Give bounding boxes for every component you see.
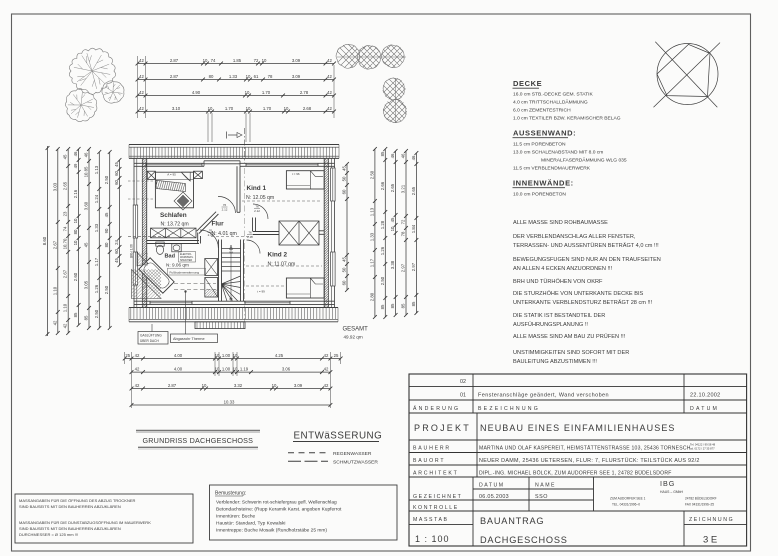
- svg-text:60: 60: [342, 280, 347, 285]
- svg-text:45: 45: [342, 166, 347, 171]
- svg-text:2.50: 2.50: [380, 276, 385, 285]
- svg-text:45: 45: [114, 258, 119, 263]
- svg-text:od. 0172 / 27 35 877: od. 0172 / 27 35 877: [690, 447, 715, 451]
- svg-text:DACHGESCHOSS: DACHGESCHOSS: [480, 535, 568, 545]
- svg-text:t = 99: t = 99: [257, 290, 265, 294]
- svg-text:76: 76: [223, 203, 227, 207]
- svg-text:85: 85: [411, 301, 416, 306]
- svg-text:DIPL.-ING. MICHAEL BÖLCK, ZUM: DIPL.-ING. MICHAEL BÖLCK, ZUM AUDORFER S…: [479, 469, 672, 476]
- svg-text:2.12: 2.12: [247, 235, 253, 239]
- svg-text:PROJEKT: PROJEKT: [414, 423, 471, 433]
- svg-text:3.32: 3.32: [234, 383, 243, 388]
- svg-text:1.00: 1.00: [222, 367, 231, 372]
- svg-text:10: 10: [284, 106, 289, 111]
- svg-text:DATUM: DATUM: [690, 406, 719, 412]
- svg-text:02: 02: [460, 379, 466, 385]
- svg-text:2.50: 2.50: [104, 285, 109, 294]
- svg-text:2.65: 2.65: [411, 186, 416, 195]
- svg-text:42: 42: [327, 58, 332, 63]
- svg-text:ARCHITEKT: ARCHITEKT: [413, 470, 459, 476]
- svg-text:2.78: 2.78: [300, 90, 309, 95]
- svg-text:85: 85: [84, 315, 89, 320]
- svg-text:N: 12.05 qm: N: 12.05 qm: [246, 195, 274, 201]
- svg-text:4.90: 4.90: [192, 90, 201, 95]
- svg-text:t = 96: t = 96: [292, 172, 300, 176]
- svg-text:AN ALLEN 4 ECKEN ANZUORDNEN !!: AN ALLEN 4 ECKEN ANZUORDNEN !!!: [513, 266, 613, 272]
- svg-text:45: 45: [63, 154, 68, 159]
- svg-text:4.0 cm TRITTSCHALLDÄMMUNG: 4.0 cm TRITTSCHALLDÄMMUNG: [513, 99, 588, 106]
- svg-text:INNENWÄNDE:: INNENWÄNDE:: [513, 179, 574, 188]
- svg-text:45: 45: [390, 217, 395, 222]
- svg-text:1 : 100: 1 : 100: [415, 534, 450, 544]
- svg-text:3.21: 3.21: [401, 184, 406, 193]
- svg-text:42: 42: [324, 353, 329, 358]
- svg-text:1.13: 1.13: [94, 165, 99, 174]
- svg-text:ZUM AUDORFER SEE 1: ZUM AUDORFER SEE 1: [610, 497, 646, 501]
- svg-text:Schlafen: Schlafen: [160, 212, 187, 219]
- svg-text:UNSTIMMIGKEITEN SIND SOFORT MI: UNSTIMMIGKEITEN SIND SOFORT MIT DER: [513, 350, 629, 356]
- svg-text:3.09: 3.09: [292, 74, 301, 79]
- svg-text:GASLÜFTUNG: GASLÜFTUNG: [140, 334, 162, 338]
- svg-text:1.33: 1.33: [94, 223, 99, 232]
- svg-text:6.0 cm ZEMENTESTRICH: 6.0 cm ZEMENTESTRICH: [513, 108, 571, 114]
- svg-text:2.50: 2.50: [104, 175, 109, 184]
- svg-text:10: 10: [208, 106, 213, 111]
- svg-text:46: 46: [390, 153, 395, 158]
- svg-text:42: 42: [327, 106, 332, 111]
- svg-text:10: 10: [245, 90, 250, 95]
- svg-text:10: 10: [246, 74, 251, 79]
- svg-text:2.87: 2.87: [170, 58, 179, 63]
- svg-text:TERRASSEN- UND AUSSENTÜREN BET: TERRASSEN- UND AUSSENTÜREN BETRÄGT 4,0 c…: [513, 242, 659, 249]
- svg-text:REGENWASSER: REGENWASSER: [333, 451, 372, 457]
- svg-text:Verblender: Schwerin rot-schie: Verblender: Schwerin rot-schiefergrau ge…: [216, 500, 337, 506]
- svg-text:2.87: 2.87: [170, 74, 179, 79]
- svg-text:60: 60: [342, 189, 347, 194]
- svg-text:49.92 qm: 49.92 qm: [344, 335, 363, 340]
- svg-text:10: 10: [390, 226, 395, 231]
- svg-text:Innentüren: Buche: Innentüren: Buche: [216, 514, 256, 520]
- svg-text:80: 80: [209, 74, 214, 79]
- svg-text:60: 60: [114, 180, 119, 185]
- svg-text:24: 24: [114, 240, 119, 245]
- svg-text:Tel. 04122 / 99 58 48: Tel. 04122 / 99 58 48: [690, 443, 716, 447]
- svg-text:2.16: 2.16: [73, 189, 78, 198]
- svg-text:1.70: 1.70: [262, 90, 271, 95]
- svg-text:42: 42: [135, 353, 140, 358]
- svg-text:MINERALFASERDÄMMUNG WLG 035: MINERALFASERDÄMMUNG WLG 035: [541, 157, 627, 164]
- svg-text:78: 78: [401, 231, 406, 236]
- svg-text:42: 42: [139, 58, 144, 63]
- svg-text:GESAMT: GESAMT: [343, 327, 369, 333]
- svg-text:ÜBER DACH: ÜBER DACH: [140, 339, 159, 343]
- svg-text:1.84: 1.84: [411, 224, 416, 233]
- svg-text:3.60: 3.60: [84, 201, 89, 210]
- svg-text:13.0 cm SCHALENABSTAND MIT 8.0: 13.0 cm SCHALENABSTAND MIT 8.0 cm: [513, 150, 603, 156]
- svg-text:01: 01: [460, 392, 466, 398]
- svg-text:80: 80: [104, 242, 109, 247]
- svg-text:BAULEITUNG ABZUSTIMMEN !!!: BAULEITUNG ABZUSTIMMEN !!!: [513, 359, 597, 365]
- svg-text:SSO: SSO: [535, 494, 548, 500]
- svg-text:11.5 cm PORENBETON: 11.5 cm PORENBETON: [513, 142, 566, 148]
- svg-text:85: 85: [73, 312, 78, 317]
- svg-text:BAUORT: BAUORT: [413, 458, 445, 464]
- svg-text:BRH UND TÜRHÖHEN VON OKRF: BRH UND TÜRHÖHEN VON OKRF: [513, 278, 603, 285]
- svg-text:ÄNDERUNG: ÄNDERUNG: [413, 405, 460, 412]
- svg-text:3.38: 3.38: [390, 260, 395, 269]
- svg-text:42: 42: [63, 323, 68, 328]
- svg-text:90: 90: [104, 228, 109, 233]
- svg-text:Flur: Flur: [212, 221, 225, 228]
- svg-text:SIND BAUSEITS MIT DEN BAUHERRE: SIND BAUSEITS MIT DEN BAUHERREN ABZUKLÄR…: [19, 526, 121, 531]
- svg-text:2.80: 2.80: [369, 292, 374, 301]
- svg-text:2.60: 2.60: [73, 272, 78, 281]
- svg-text:10: 10: [272, 383, 277, 388]
- svg-text:76: 76: [255, 205, 259, 209]
- svg-text:IBG: IBG: [660, 479, 675, 488]
- svg-text:2.97: 2.97: [411, 262, 416, 271]
- svg-text:24782 BÜDELSDORF: 24782 BÜDELSDORF: [685, 497, 717, 501]
- svg-text:1.00: 1.00: [222, 353, 231, 358]
- svg-text:10.0 cm PORENBETON: 10.0 cm PORENBETON: [513, 192, 566, 198]
- svg-text:85: 85: [380, 304, 385, 309]
- svg-text:3 E: 3 E: [703, 535, 717, 546]
- svg-text:3.09: 3.09: [294, 383, 303, 388]
- svg-text:DURCHMESSER = Ø 125 mm !!!: DURCHMESSER = Ø 125 mm !!!: [19, 532, 78, 537]
- svg-text:MASSTAB: MASSTAB: [413, 517, 449, 523]
- svg-text:Bemusterung:: Bemusterung:: [215, 491, 246, 497]
- svg-text:2.12: 2.12: [222, 208, 228, 212]
- svg-text:2.50: 2.50: [369, 170, 374, 179]
- svg-text:TEL. 04331/1996–0: TEL. 04331/1996–0: [612, 503, 640, 507]
- svg-text:42: 42: [139, 90, 144, 95]
- svg-text:45: 45: [342, 257, 347, 262]
- svg-text:N: 9.06 qm: N: 9.06 qm: [166, 263, 189, 268]
- svg-text:85: 85: [401, 303, 406, 308]
- svg-text:NEUER DAMM, 25436 UETERSEN, FL: NEUER DAMM, 25436 UETERSEN, FLUR: 7, FLU…: [479, 457, 700, 464]
- svg-text:85: 85: [390, 303, 395, 308]
- svg-text:1.85: 1.85: [233, 58, 242, 63]
- svg-text:46: 46: [84, 152, 89, 157]
- svg-text:DECKE: DECKE: [513, 79, 542, 88]
- svg-text:1.19: 1.19: [240, 367, 249, 372]
- svg-text:42: 42: [327, 74, 332, 79]
- svg-text:3.03: 3.03: [52, 182, 57, 191]
- svg-text:SCHMUTZWASSER: SCHMUTZWASSER: [333, 460, 378, 466]
- svg-text:1.33: 1.33: [369, 232, 374, 241]
- svg-text:25: 25: [125, 353, 130, 358]
- svg-text:AUSFÜHRUNGSPLANUNG !!: AUSFÜHRUNGSPLANUNG !!: [513, 321, 588, 328]
- svg-text:1.26: 1.26: [94, 284, 99, 293]
- svg-text:45: 45: [114, 162, 119, 167]
- svg-text:3.06: 3.06: [282, 367, 291, 372]
- svg-text:1.10: 1.10: [63, 303, 68, 312]
- svg-text:2.97: 2.97: [401, 263, 406, 272]
- svg-text:2.67: 2.67: [63, 269, 68, 278]
- svg-text:FAX 04331/1996–25: FAX 04331/1996–25: [685, 503, 714, 507]
- svg-text:61: 61: [254, 74, 259, 79]
- svg-text:11.5 cm VERBLENDMAUERWERK: 11.5 cm VERBLENDMAUERWERK: [513, 166, 591, 172]
- svg-text:ALLE MASSE SIND AM BAU ZU PRÜF: ALLE MASSE SIND AM BAU ZU PRÜFEN !!!: [513, 333, 626, 340]
- svg-text:A = 95: A = 95: [167, 173, 176, 177]
- svg-text:Betondachsteine: (Rupp Keramik: Betondachsteine: (Rupp Keramik Karst. an…: [216, 507, 342, 513]
- svg-text:10: 10: [73, 240, 78, 245]
- svg-text:4.00: 4.00: [174, 353, 183, 358]
- svg-text:2.50: 2.50: [94, 309, 99, 318]
- svg-text:50: 50: [342, 176, 347, 181]
- svg-text:2.66: 2.66: [380, 181, 385, 190]
- svg-text:42: 42: [324, 367, 329, 372]
- svg-text:1.26: 1.26: [380, 246, 385, 255]
- svg-text:Haustür: Standard, Typ Kowalsk: Haustür: Standard, Typ Kowalski: [216, 521, 286, 527]
- svg-text:1.17: 1.17: [94, 257, 99, 266]
- svg-text:DATUM: DATUM: [479, 482, 505, 488]
- svg-text:N: 13.72 qm: N: 13.72 qm: [161, 221, 189, 227]
- svg-text:MASSANGABEN FÜR DIE DUNSTABZUG: MASSANGABEN FÜR DIE DUNSTABZUGSÖFFNUNG I…: [19, 520, 151, 525]
- svg-text:3.10: 3.10: [172, 106, 181, 111]
- svg-text:74: 74: [63, 226, 68, 231]
- svg-text:22.10.2002: 22.10.2002: [690, 392, 721, 398]
- svg-text:60: 60: [114, 171, 119, 176]
- svg-text:DIE STURZHÖHE VON UNTERKANTE D: DIE STURZHÖHE VON UNTERKANTE DECKE BIS: [513, 290, 643, 297]
- svg-text:BEZEICHNUNG: BEZEICHNUNG: [478, 406, 540, 412]
- svg-text:NAME: NAME: [535, 482, 556, 488]
- svg-text:Auf: Auf: [229, 251, 233, 255]
- svg-text:42: 42: [327, 90, 332, 95]
- svg-text:1.13: 1.13: [369, 207, 374, 216]
- svg-text:2.65: 2.65: [63, 181, 68, 190]
- svg-text:10,70: 10,70: [63, 238, 68, 249]
- svg-text:72: 72: [254, 58, 259, 63]
- svg-text:NEUBAU EINES EINFAMILIENHAUSES: NEUBAU EINES EINFAMILIENHAUSES: [480, 423, 676, 433]
- svg-text:SIND BAUSEITS MIT DEN BAUHERRE: SIND BAUSEITS MIT DEN BAUHERREN ABZUKLÄR…: [19, 504, 121, 509]
- svg-text:42: 42: [324, 383, 329, 388]
- svg-text:DER VERBLENDANSCHLAG ALLER FEN: DER VERBLENDANSCHLAG ALLER FENSTER,: [513, 234, 636, 240]
- svg-text:42: 42: [52, 320, 57, 325]
- svg-text:ZEICHNUNG: ZEICHNUNG: [689, 517, 734, 523]
- svg-text:Kind 1: Kind 1: [247, 185, 267, 192]
- svg-text:10: 10: [262, 58, 267, 63]
- svg-text:BAUANTRAG: BAUANTRAG: [480, 516, 544, 526]
- svg-text:DIE STATIK IST BESTANDTEIL DER: DIE STATIK IST BESTANDTEIL DER: [513, 313, 605, 319]
- svg-text:74: 74: [211, 58, 216, 63]
- svg-text:10: 10: [202, 383, 207, 388]
- svg-text:BEWEGUNGSFUGEN SIND NUR AN DEN: BEWEGUNGSFUGEN SIND NUR AN DEN TRAUFSEIT…: [513, 257, 661, 263]
- svg-text:2.68: 2.68: [303, 106, 312, 111]
- svg-text:42: 42: [135, 383, 140, 388]
- svg-text:1.24: 1.24: [94, 194, 99, 203]
- svg-text:1.17: 1.17: [369, 258, 374, 267]
- svg-text:MASSANGABEN FÜR DIE ÖFFNUNG DE: MASSANGABEN FÜR DIE ÖFFNUNG DES ABZUG TR…: [19, 498, 135, 503]
- svg-text:46: 46: [401, 153, 406, 158]
- svg-text:HAUS – GMbH: HAUS – GMbH: [660, 490, 684, 494]
- svg-text:1.0 cm TEXTILER BZW. KERAMISCH: 1.0 cm TEXTILER BZW. KERAMISCHER BELAG: [513, 116, 621, 122]
- svg-text:23: 23: [63, 211, 68, 216]
- svg-text:2.65: 2.65: [390, 183, 395, 192]
- svg-text:60: 60: [114, 249, 119, 254]
- svg-text:1.33: 1.33: [229, 74, 238, 79]
- svg-text:42: 42: [135, 367, 140, 372]
- svg-text:8.60: 8.60: [42, 236, 47, 245]
- svg-text:SPEICHER: SPEICHER: [180, 259, 192, 262]
- svg-text:Abgasrohr Therme: Abgasrohr Therme: [173, 337, 205, 341]
- svg-text:72: 72: [401, 219, 406, 224]
- svg-text:46: 46: [73, 151, 78, 156]
- svg-text:MARTINA UND OLAF KASPEREIT, HE: MARTINA UND OLAF KASPEREIT, HEIMSTÄTTENS…: [479, 444, 691, 451]
- svg-text:KONTROLLE: KONTROLLE: [413, 505, 459, 511]
- svg-text:3.05: 3.05: [84, 280, 89, 289]
- svg-text:1.70: 1.70: [225, 106, 234, 111]
- svg-text:AUSSENWAND:: AUSSENWAND:: [513, 129, 576, 138]
- svg-text:N: 11.07 qm: N: 11.07 qm: [268, 261, 296, 267]
- svg-text:ALLE MASSE SIND ROHBAUMASSE: ALLE MASSE SIND ROHBAUMASSE: [513, 220, 608, 226]
- svg-text:2.67: 2.67: [52, 240, 57, 249]
- svg-text:10.33: 10.33: [224, 399, 235, 404]
- svg-text:2.87: 2.87: [168, 383, 177, 388]
- svg-text:10: 10: [203, 58, 208, 63]
- svg-text:46: 46: [411, 155, 416, 160]
- svg-text:80: 80: [73, 229, 78, 234]
- svg-text:3.09: 3.09: [292, 58, 301, 63]
- svg-text:50: 50: [342, 267, 347, 272]
- svg-text:06.05.2003: 06.05.2003: [479, 494, 509, 500]
- svg-text:45: 45: [104, 212, 109, 217]
- svg-text:45: 45: [84, 242, 89, 247]
- svg-text:Fußbodenerwärmung: Fußbodenerwärmung: [170, 270, 200, 274]
- svg-text:Kind 2: Kind 2: [268, 251, 288, 258]
- svg-text:16.0 cm STB.-DECKE GEM. STATIK: 16.0 cm STB.-DECKE GEM. STATIK: [513, 92, 593, 98]
- svg-text:4.25: 4.25: [275, 353, 284, 358]
- svg-text:Bad: Bad: [165, 254, 176, 260]
- svg-text:49: 49: [73, 163, 78, 168]
- svg-text:1.70: 1.70: [263, 106, 272, 111]
- svg-text:ENTWäSSERUNG: ENTWäSSERUNG: [294, 431, 383, 442]
- svg-text:10: 10: [73, 218, 78, 223]
- svg-text:Innentreppe: Buche Mosaik (Run: Innentreppe: Buche Mosaik (Rundholzstäbe…: [216, 528, 327, 534]
- svg-text:76: 76: [248, 231, 252, 235]
- svg-text:BAUHERR: BAUHERR: [413, 445, 451, 451]
- svg-text:GRUNDRISS DACHGESCHOSS: GRUNDRISS DACHGESCHOSS: [143, 436, 254, 445]
- svg-text:1.10: 1.10: [52, 286, 57, 295]
- svg-text:N: 4.01 qm: N: 4.01 qm: [212, 231, 237, 237]
- svg-text:UNTERKANTE VERBLENDSTURZ BETRÄ: UNTERKANTE VERBLENDSTURZ BETRÄGT 28 cm !…: [513, 299, 653, 306]
- svg-text:78: 78: [268, 74, 273, 79]
- svg-text:BRH 1.06: BRH 1.06: [130, 244, 134, 258]
- svg-text:85: 85: [380, 151, 385, 156]
- svg-text:10: 10: [246, 106, 251, 111]
- svg-text:42: 42: [139, 74, 144, 79]
- svg-text:GEZEICHNET: GEZEICHNET: [413, 494, 462, 500]
- svg-text:1.28: 1.28: [380, 220, 385, 229]
- svg-text:10.85: 10.85: [84, 166, 89, 177]
- svg-text:25: 25: [334, 353, 339, 358]
- svg-text:4.00: 4.00: [174, 367, 183, 372]
- svg-text:2.12: 2.12: [254, 209, 260, 213]
- svg-text:42: 42: [139, 106, 144, 111]
- svg-text:Fensteranschläge geändert, Wan: Fensteranschläge geändert, Wand verschob…: [478, 392, 609, 398]
